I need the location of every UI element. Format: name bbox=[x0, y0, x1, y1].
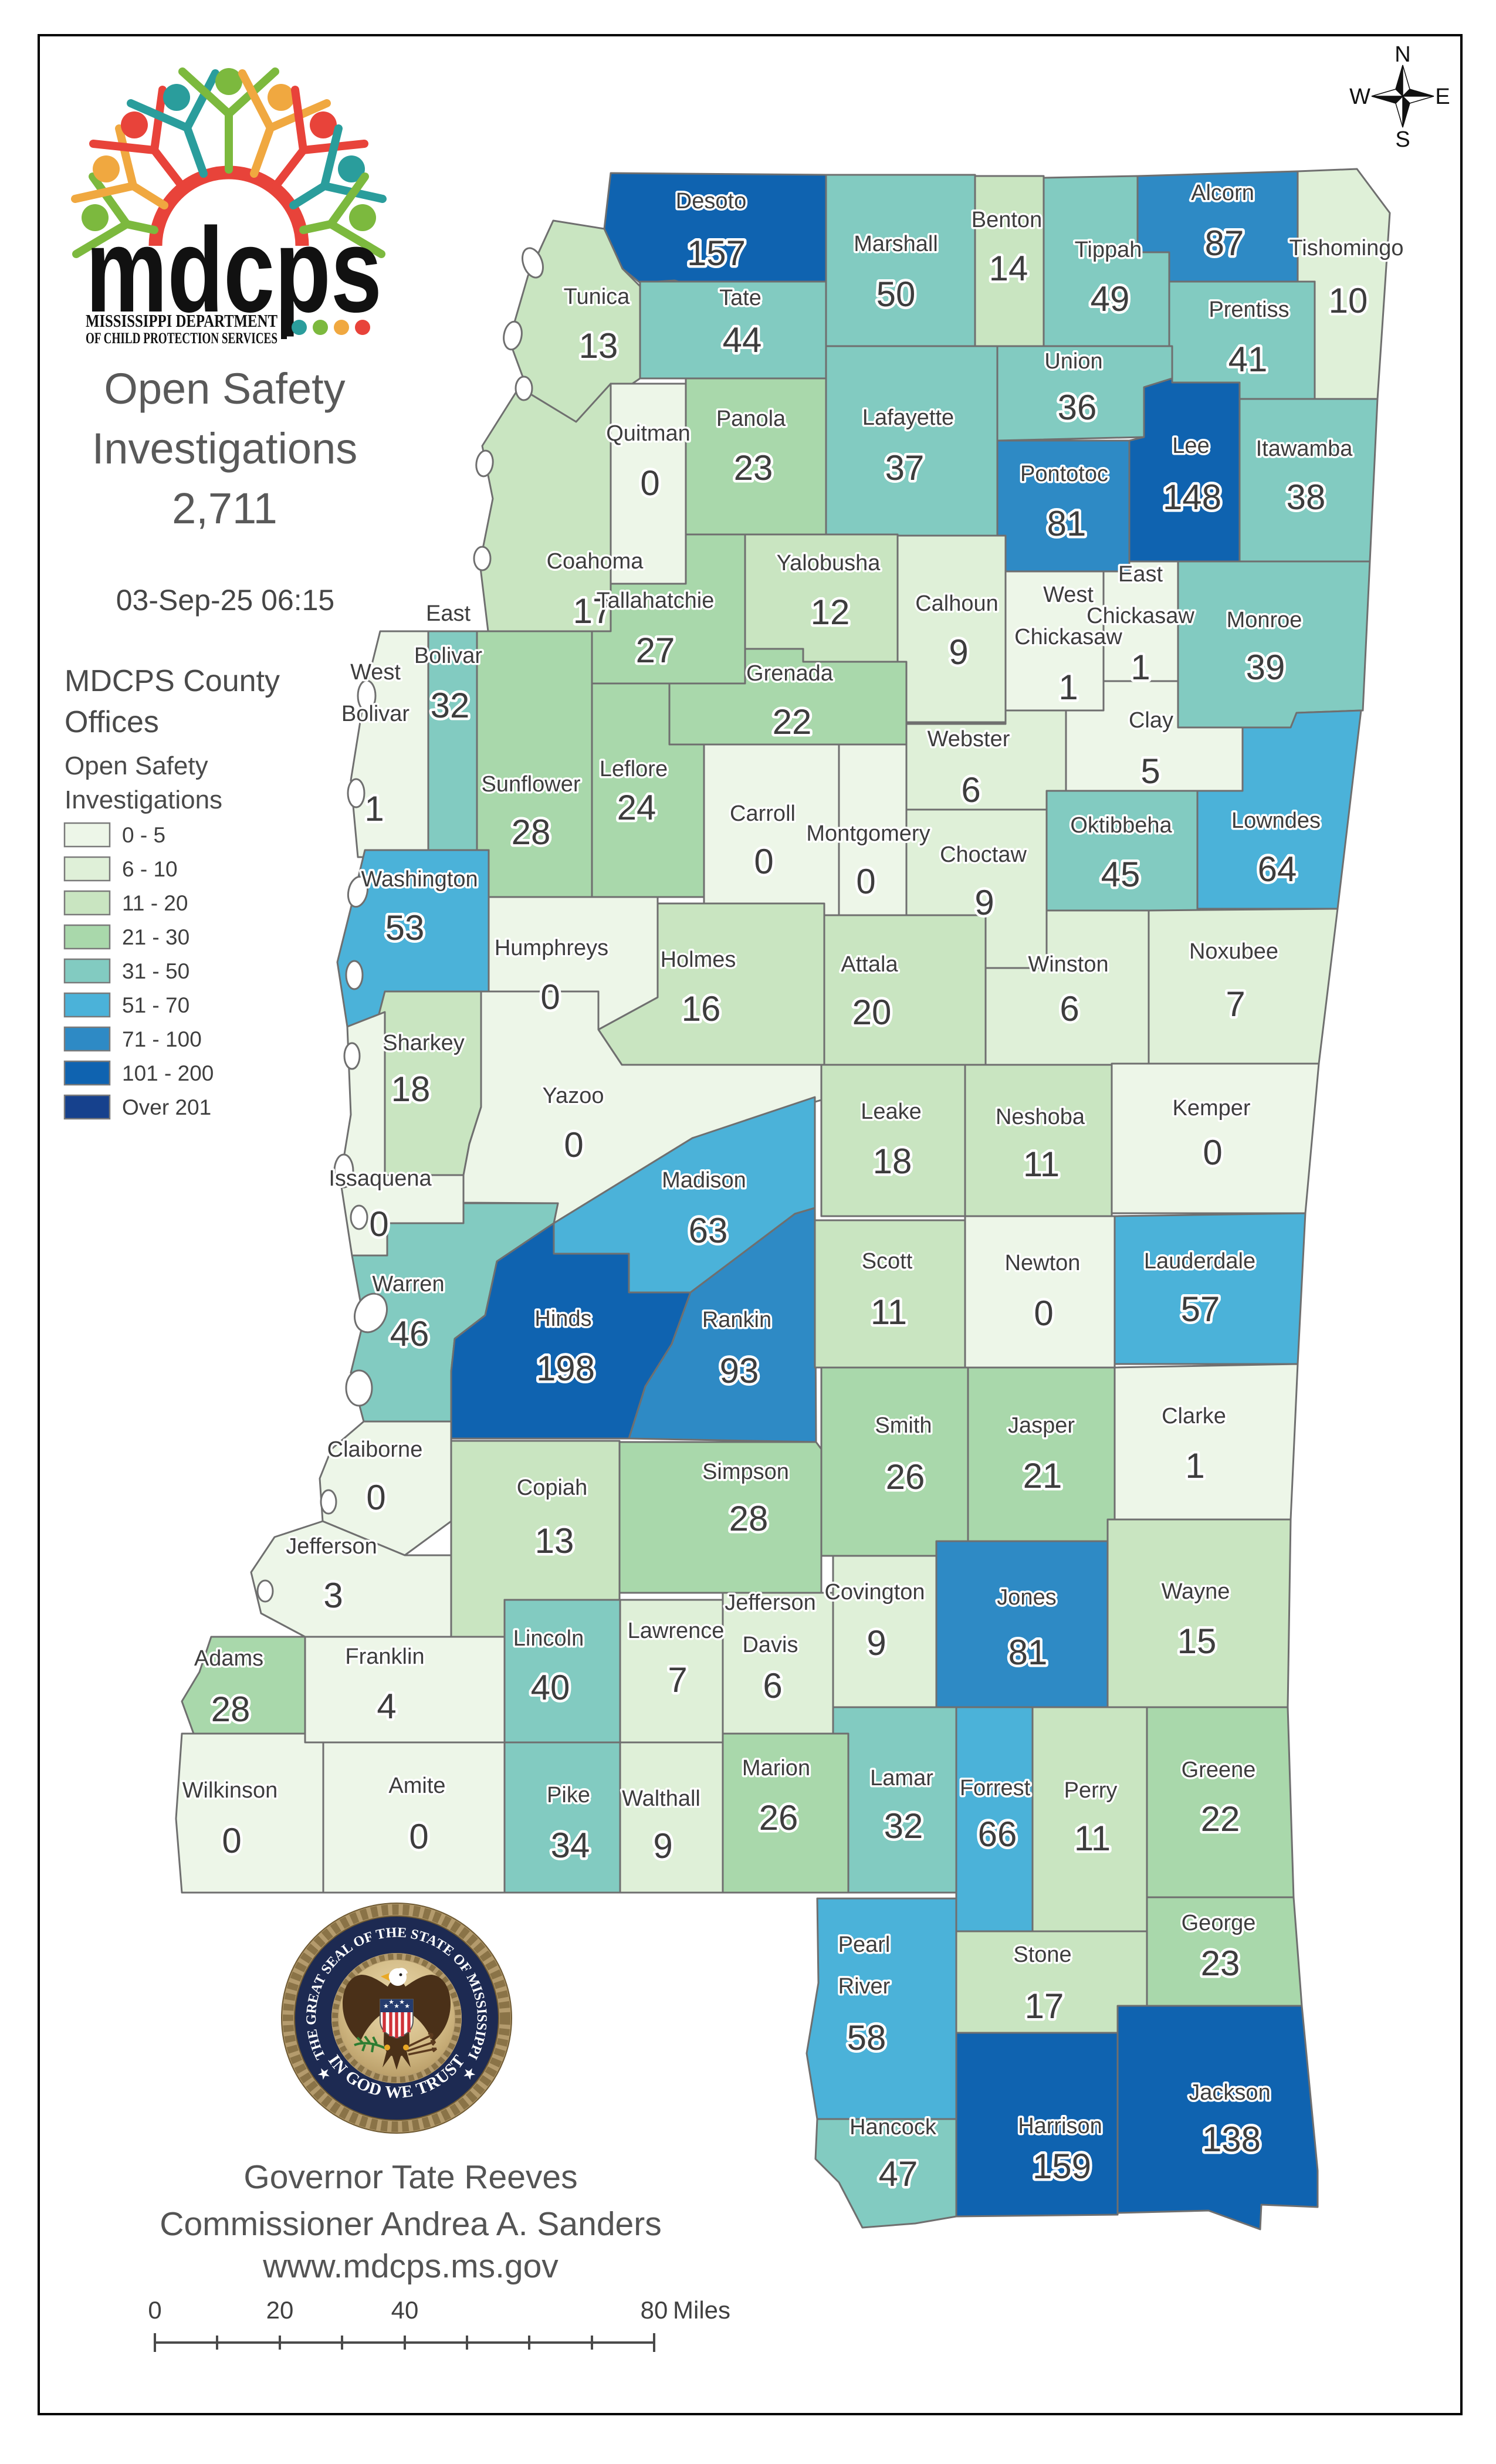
svg-text:Clay: Clay bbox=[1129, 708, 1173, 733]
svg-text:23: 23 bbox=[1201, 1944, 1240, 1983]
svg-text:44: 44 bbox=[723, 320, 762, 360]
svg-text:34: 34 bbox=[551, 1826, 590, 1865]
svg-text:0: 0 bbox=[640, 463, 659, 503]
svg-text:Marion: Marion bbox=[742, 1756, 810, 1781]
svg-text:Open Safety: Open Safety bbox=[104, 364, 345, 413]
svg-text:16: 16 bbox=[682, 989, 721, 1028]
svg-text:159: 159 bbox=[1033, 2147, 1091, 2186]
svg-text:12: 12 bbox=[811, 593, 850, 632]
svg-text:26: 26 bbox=[886, 1457, 925, 1497]
svg-text:Quitman: Quitman bbox=[606, 421, 691, 446]
svg-text:9: 9 bbox=[867, 1623, 886, 1663]
svg-text:George: George bbox=[1182, 1911, 1256, 1935]
svg-text:50: 50 bbox=[876, 275, 916, 314]
svg-text:Pontotoc: Pontotoc bbox=[1020, 462, 1108, 486]
svg-text:Greene: Greene bbox=[1182, 1758, 1256, 1782]
svg-text:40: 40 bbox=[391, 2296, 419, 2324]
svg-text:0: 0 bbox=[1034, 1294, 1053, 1333]
svg-text:Copiah: Copiah bbox=[517, 1475, 587, 1500]
svg-text:57: 57 bbox=[1181, 1289, 1220, 1329]
svg-text:Desoto: Desoto bbox=[676, 189, 746, 214]
svg-text:11: 11 bbox=[1023, 1145, 1060, 1184]
svg-text:Lowndes: Lowndes bbox=[1231, 808, 1321, 833]
svg-text:14: 14 bbox=[989, 249, 1028, 288]
svg-text:Over 201: Over 201 bbox=[122, 1095, 211, 1119]
svg-text:0: 0 bbox=[369, 1204, 388, 1244]
svg-text:1: 1 bbox=[1058, 668, 1078, 707]
svg-text:40: 40 bbox=[531, 1668, 570, 1707]
svg-text:24: 24 bbox=[617, 788, 656, 827]
svg-text:0: 0 bbox=[222, 1821, 241, 1860]
svg-text:22: 22 bbox=[773, 702, 812, 742]
svg-text:Itawamba: Itawamba bbox=[1256, 436, 1353, 461]
svg-text:6: 6 bbox=[1060, 989, 1079, 1028]
svg-text:18: 18 bbox=[391, 1069, 431, 1109]
svg-text:Bolivar: Bolivar bbox=[414, 644, 482, 668]
svg-text:41: 41 bbox=[1228, 340, 1268, 379]
svg-text:28: 28 bbox=[211, 1690, 251, 1729]
svg-text:S: S bbox=[1395, 127, 1410, 152]
svg-text:32: 32 bbox=[431, 686, 470, 725]
svg-text:51 - 70: 51 - 70 bbox=[122, 993, 189, 1017]
svg-text:0: 0 bbox=[366, 1478, 385, 1517]
svg-text:6: 6 bbox=[763, 1666, 782, 1705]
svg-text:Warren: Warren bbox=[372, 1272, 444, 1297]
svg-text:37: 37 bbox=[885, 448, 925, 488]
svg-text:Pearl: Pearl bbox=[838, 1932, 891, 1957]
svg-text:Yalobusha: Yalobusha bbox=[777, 551, 881, 576]
svg-text:Noxubee: Noxubee bbox=[1189, 939, 1278, 964]
svg-text:Humphreys: Humphreys bbox=[495, 936, 608, 960]
svg-text:Claiborne: Claiborne bbox=[327, 1437, 423, 1462]
svg-text:71 - 100: 71 - 100 bbox=[122, 1027, 202, 1051]
svg-text:9: 9 bbox=[974, 883, 994, 922]
svg-text:Webster: Webster bbox=[928, 727, 1010, 752]
svg-text:Tallahatchie: Tallahatchie bbox=[597, 588, 715, 613]
svg-text:Stone: Stone bbox=[1013, 1942, 1071, 1967]
svg-text:66: 66 bbox=[978, 1815, 1017, 1854]
svg-text:0: 0 bbox=[540, 977, 560, 1017]
svg-text:101 - 200: 101 - 200 bbox=[122, 1061, 214, 1085]
svg-text:5: 5 bbox=[1140, 752, 1160, 791]
svg-text:MISSISSIPPI DEPARTMENT: MISSISSIPPI DEPARTMENT bbox=[86, 310, 277, 331]
svg-text:36: 36 bbox=[1058, 388, 1097, 427]
svg-text:20: 20 bbox=[852, 993, 892, 1032]
svg-text:7: 7 bbox=[668, 1660, 687, 1700]
svg-text:53: 53 bbox=[385, 908, 425, 947]
svg-text:Jasper: Jasper bbox=[1008, 1413, 1075, 1438]
svg-text:Jefferson: Jefferson bbox=[725, 1590, 816, 1615]
svg-text:47: 47 bbox=[879, 2154, 918, 2194]
svg-text:Simpson: Simpson bbox=[702, 1460, 789, 1484]
svg-text:198: 198 bbox=[536, 1349, 595, 1388]
svg-text:Jefferson: Jefferson bbox=[286, 1534, 377, 1559]
svg-text:Hinds: Hinds bbox=[534, 1307, 591, 1331]
svg-text:4: 4 bbox=[377, 1687, 396, 1726]
svg-text:Oktibbeha: Oktibbeha bbox=[1070, 813, 1172, 838]
svg-text:0: 0 bbox=[1203, 1133, 1222, 1172]
svg-text:Grenada: Grenada bbox=[746, 661, 834, 686]
svg-text:Washington: Washington bbox=[361, 867, 478, 892]
svg-text:23: 23 bbox=[734, 448, 773, 488]
svg-text:32: 32 bbox=[884, 1806, 923, 1846]
svg-text:28: 28 bbox=[729, 1499, 769, 1538]
svg-text:Kemper: Kemper bbox=[1172, 1096, 1250, 1121]
svg-text:0: 0 bbox=[564, 1125, 583, 1165]
svg-text:Smith: Smith bbox=[875, 1413, 932, 1438]
svg-text:Madison: Madison bbox=[662, 1168, 746, 1193]
svg-text:157: 157 bbox=[687, 233, 746, 273]
svg-text:138: 138 bbox=[1202, 2120, 1261, 2159]
svg-text:Scott: Scott bbox=[862, 1249, 913, 1274]
svg-text:81: 81 bbox=[1008, 1633, 1048, 1672]
svg-text:Marshall: Marshall bbox=[854, 232, 938, 256]
svg-text:80: 80 bbox=[641, 2296, 668, 2324]
svg-text:Lawrence: Lawrence bbox=[628, 1619, 725, 1643]
svg-text:Yazoo: Yazoo bbox=[543, 1084, 604, 1108]
svg-text:Lincoln: Lincoln bbox=[513, 1626, 584, 1651]
svg-text:Pike: Pike bbox=[547, 1783, 590, 1808]
svg-text:West: West bbox=[350, 660, 401, 685]
svg-text:Clarke: Clarke bbox=[1162, 1404, 1226, 1429]
svg-text:148: 148 bbox=[1163, 478, 1221, 517]
svg-text:38: 38 bbox=[1287, 478, 1326, 517]
svg-text:Carroll: Carroll bbox=[730, 801, 796, 826]
svg-text:Leake: Leake bbox=[861, 1099, 922, 1124]
svg-text:Walthall: Walthall bbox=[622, 1786, 700, 1811]
svg-text:93: 93 bbox=[720, 1351, 759, 1390]
svg-text:★: ★ bbox=[388, 1999, 394, 2006]
svg-text:45: 45 bbox=[1101, 855, 1140, 894]
svg-text:0: 0 bbox=[148, 2296, 161, 2324]
svg-text:Benton: Benton bbox=[972, 208, 1042, 232]
svg-text:39: 39 bbox=[1246, 648, 1285, 687]
svg-text:Chickasaw: Chickasaw bbox=[1087, 604, 1194, 628]
svg-text:Franklin: Franklin bbox=[345, 1644, 424, 1669]
svg-text:Hancock: Hancock bbox=[849, 2115, 937, 2140]
svg-text:Jones: Jones bbox=[997, 1585, 1056, 1610]
svg-text:★: ★ bbox=[404, 2003, 410, 2010]
svg-text:3: 3 bbox=[323, 1576, 343, 1615]
svg-text:64: 64 bbox=[1258, 849, 1297, 889]
svg-text:10: 10 bbox=[1329, 281, 1368, 320]
svg-text:1: 1 bbox=[1131, 648, 1150, 687]
svg-text:20: 20 bbox=[266, 2296, 294, 2324]
svg-text:Miles: Miles bbox=[673, 2296, 730, 2324]
svg-text:N: N bbox=[1395, 42, 1410, 67]
svg-text:03-Sep-25 06:15: 03-Sep-25 06:15 bbox=[116, 584, 335, 617]
svg-text:Leflore: Leflore bbox=[600, 757, 668, 781]
svg-text:Investigations: Investigations bbox=[92, 424, 358, 473]
svg-text:Amite: Amite bbox=[388, 1773, 445, 1798]
svg-text:0: 0 bbox=[856, 862, 875, 901]
svg-text:Prentiss: Prentiss bbox=[1209, 297, 1289, 322]
svg-text:Rankin: Rankin bbox=[702, 1308, 771, 1332]
svg-text:Panola: Panola bbox=[716, 407, 786, 431]
svg-text:11: 11 bbox=[871, 1292, 907, 1332]
svg-text:13: 13 bbox=[579, 326, 618, 365]
svg-text:Neshoba: Neshoba bbox=[996, 1105, 1085, 1129]
svg-text:Tate: Tate bbox=[719, 286, 761, 310]
svg-text:Attala: Attala bbox=[841, 952, 898, 977]
svg-text:17: 17 bbox=[1025, 1986, 1064, 2026]
svg-text:OF CHILD PROTECTION SERVICES: OF CHILD PROTECTION SERVICES bbox=[86, 330, 277, 347]
svg-text:Issaquena: Issaquena bbox=[329, 1166, 432, 1191]
svg-text:Jackson: Jackson bbox=[1189, 2080, 1270, 2105]
svg-text:Commissioner Andrea A. Sanders: Commissioner Andrea A. Sanders bbox=[160, 2205, 661, 2243]
svg-text:Newton: Newton bbox=[1005, 1251, 1081, 1275]
svg-text:Union: Union bbox=[1044, 349, 1102, 374]
svg-text:0: 0 bbox=[754, 842, 773, 881]
svg-text:7: 7 bbox=[1226, 984, 1245, 1024]
svg-text:MDCPS County: MDCPS County bbox=[65, 664, 280, 698]
svg-text:Lamar: Lamar bbox=[870, 1766, 933, 1791]
svg-text:W: W bbox=[1349, 84, 1370, 109]
svg-text:www.mdcps.ms.gov: www.mdcps.ms.gov bbox=[262, 2248, 559, 2285]
svg-text:21 - 30: 21 - 30 bbox=[122, 925, 189, 949]
svg-text:Calhoun: Calhoun bbox=[915, 591, 999, 616]
svg-text:26: 26 bbox=[759, 1798, 798, 1837]
svg-text:★: ★ bbox=[399, 1999, 405, 2006]
svg-text:1: 1 bbox=[364, 789, 384, 828]
svg-text:Choctaw: Choctaw bbox=[940, 842, 1027, 867]
svg-text:6: 6 bbox=[961, 770, 980, 810]
svg-text:River: River bbox=[838, 1974, 891, 1999]
svg-text:6 - 10: 6 - 10 bbox=[122, 857, 178, 881]
svg-text:0 - 5: 0 - 5 bbox=[122, 823, 165, 847]
svg-text:Alcorn: Alcorn bbox=[1191, 181, 1254, 205]
svg-text:E: E bbox=[1435, 84, 1450, 109]
svg-text:Covington: Covington bbox=[824, 1580, 925, 1605]
svg-text:28: 28 bbox=[512, 813, 551, 852]
svg-text:58: 58 bbox=[847, 2018, 886, 2057]
svg-text:0: 0 bbox=[409, 1817, 428, 1856]
svg-text:Monroe: Monroe bbox=[1227, 608, 1302, 632]
svg-text:9: 9 bbox=[653, 1826, 672, 1866]
svg-text:Bolivar: Bolivar bbox=[341, 702, 409, 726]
svg-text:East: East bbox=[426, 601, 471, 626]
svg-text:Holmes: Holmes bbox=[661, 947, 736, 972]
svg-text:Tishomingo: Tishomingo bbox=[1289, 236, 1403, 260]
svg-text:Chickasaw: Chickasaw bbox=[1014, 625, 1122, 649]
svg-text:Winston: Winston bbox=[1028, 952, 1108, 977]
svg-text:Sharkey: Sharkey bbox=[383, 1031, 464, 1055]
svg-text:9: 9 bbox=[949, 632, 968, 672]
svg-text:Wilkinson: Wilkinson bbox=[182, 1778, 278, 1803]
svg-text:2,711: 2,711 bbox=[172, 484, 277, 533]
svg-text:27: 27 bbox=[636, 631, 675, 670]
svg-text:Lee: Lee bbox=[1172, 434, 1209, 458]
svg-text:East: East bbox=[1118, 562, 1163, 587]
svg-text:46: 46 bbox=[390, 1314, 429, 1353]
svg-text:87: 87 bbox=[1205, 224, 1244, 263]
svg-text:Forrest: Forrest bbox=[960, 1776, 1031, 1800]
svg-text:Tippah: Tippah bbox=[1075, 238, 1142, 262]
svg-text:63: 63 bbox=[689, 1211, 728, 1250]
svg-text:Harrison: Harrison bbox=[1018, 2114, 1102, 2138]
svg-text:18: 18 bbox=[873, 1142, 912, 1181]
svg-text:Sunflower: Sunflower bbox=[482, 772, 581, 797]
svg-text:Lafayette: Lafayette bbox=[862, 405, 954, 430]
svg-text:Adams: Adams bbox=[194, 1646, 263, 1671]
svg-text:Open Safety: Open Safety bbox=[65, 752, 208, 780]
svg-text:11 - 20: 11 - 20 bbox=[122, 891, 188, 915]
svg-text:31 - 50: 31 - 50 bbox=[122, 959, 189, 983]
svg-text:21: 21 bbox=[1023, 1456, 1062, 1495]
svg-text:Governor Tate Reeves: Governor Tate Reeves bbox=[243, 2158, 577, 2196]
svg-text:Tunica: Tunica bbox=[564, 285, 631, 309]
svg-text:Wayne: Wayne bbox=[1162, 1579, 1230, 1604]
svg-text:Offices: Offices bbox=[65, 705, 159, 739]
svg-text:81: 81 bbox=[1047, 504, 1087, 543]
svg-text:13: 13 bbox=[535, 1521, 574, 1561]
svg-text:Davis: Davis bbox=[742, 1633, 798, 1657]
svg-text:49: 49 bbox=[1091, 279, 1130, 319]
svg-text:Lauderdale: Lauderdale bbox=[1144, 1249, 1255, 1274]
svg-text:15: 15 bbox=[1177, 1622, 1217, 1661]
svg-text:Investigations: Investigations bbox=[65, 786, 222, 814]
svg-text:22: 22 bbox=[1201, 1799, 1240, 1839]
svg-text:Coahoma: Coahoma bbox=[547, 549, 644, 574]
svg-text:1: 1 bbox=[1185, 1446, 1204, 1485]
svg-text:Montgomery: Montgomery bbox=[806, 821, 930, 846]
svg-text:11: 11 bbox=[1074, 1819, 1111, 1858]
svg-text:Perry: Perry bbox=[1064, 1778, 1118, 1803]
